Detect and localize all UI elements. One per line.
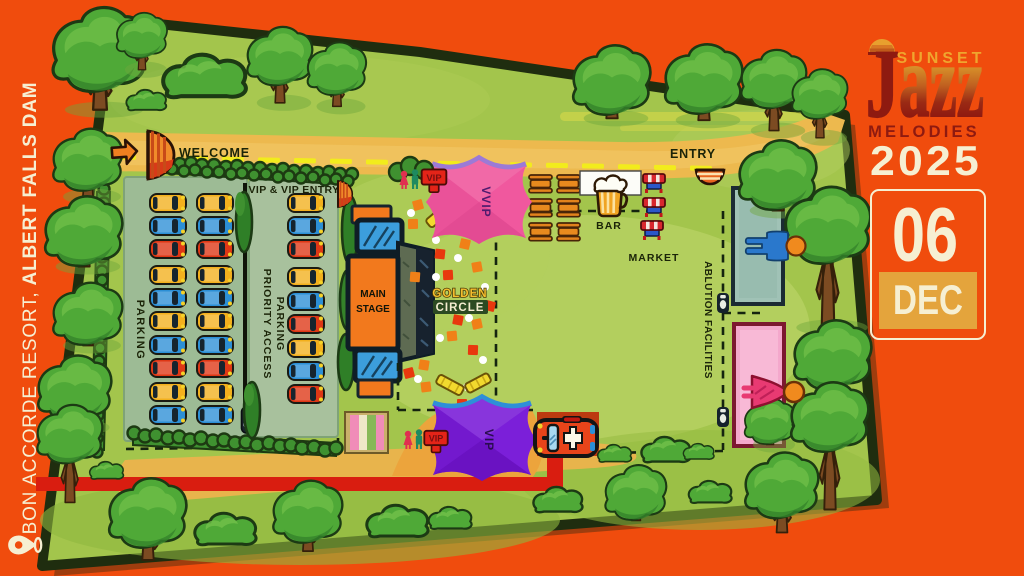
svg-text:VVIP: VVIP bbox=[479, 186, 493, 217]
svg-text:MAIN: MAIN bbox=[360, 289, 386, 300]
svg-text:BAR: BAR bbox=[596, 220, 622, 232]
svg-text:J: J bbox=[866, 30, 899, 137]
svg-text:06: 06 bbox=[892, 193, 958, 278]
svg-text:BON ACCORDE RESORT, ALBERT FAL: BON ACCORDE RESORT, ALBERT FALLS DAM bbox=[20, 82, 41, 535]
svg-text:ABLUTION FACILITIES: ABLUTION FACILITIES bbox=[702, 261, 713, 379]
svg-text:VIP: VIP bbox=[429, 434, 444, 444]
svg-text:PARKING: PARKING bbox=[274, 297, 286, 352]
svg-text:WELCOME: WELCOME bbox=[179, 146, 250, 160]
svg-text:VIP: VIP bbox=[482, 429, 496, 451]
svg-text:STAGE: STAGE bbox=[356, 304, 390, 315]
svg-text:PRIORITY ACCESS: PRIORITY ACCESS bbox=[261, 269, 273, 380]
svg-text:ENTRY: ENTRY bbox=[670, 147, 716, 161]
svg-text:MARKET: MARKET bbox=[629, 252, 680, 264]
svg-text:VIP: VIP bbox=[426, 173, 442, 184]
svg-text:azz: azz bbox=[899, 24, 984, 139]
svg-text:2025: 2025 bbox=[870, 137, 982, 184]
svg-text:DEC: DEC bbox=[893, 276, 963, 323]
svg-text:PARKING: PARKING bbox=[134, 300, 146, 360]
svg-text:CIRCLE: CIRCLE bbox=[436, 302, 485, 314]
svg-text:GOLDEN: GOLDEN bbox=[432, 288, 487, 300]
svg-text:SUNSET: SUNSET bbox=[897, 50, 986, 67]
